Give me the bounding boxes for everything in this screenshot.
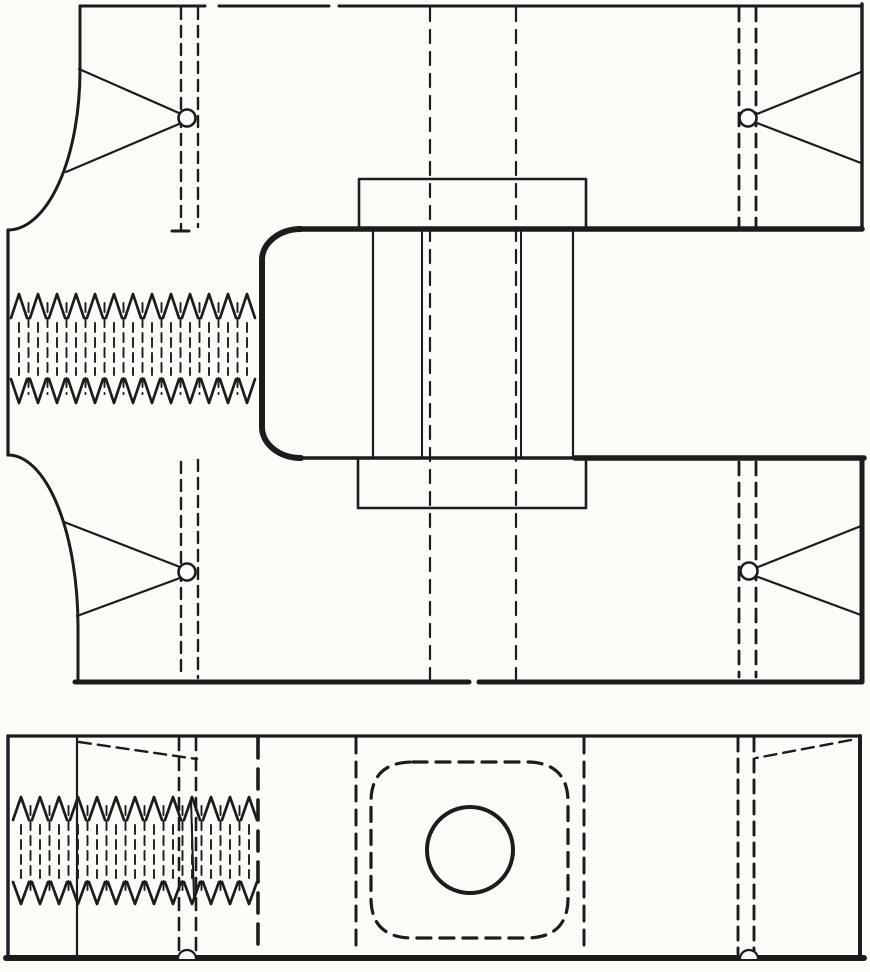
oil-hole-circle xyxy=(740,110,757,127)
drawing-canvas xyxy=(0,0,870,972)
drawing-sheet xyxy=(0,0,870,972)
oil-hole-circle xyxy=(179,564,196,581)
oil-hole-circle xyxy=(179,110,196,127)
bottom-hole-exit-right xyxy=(740,950,758,959)
oil-hole-circle xyxy=(741,563,758,580)
bottom-hole-exit-left xyxy=(178,950,196,959)
